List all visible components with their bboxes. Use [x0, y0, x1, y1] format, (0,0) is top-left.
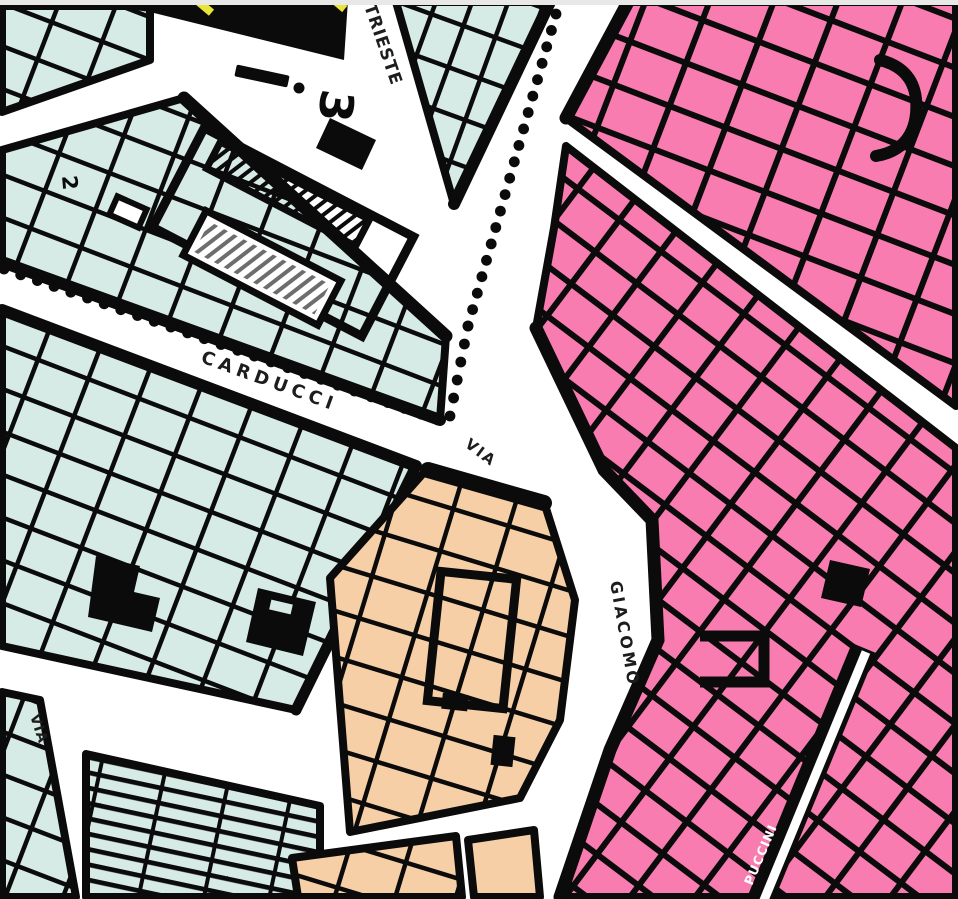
section-dot-icon	[294, 83, 305, 94]
parcel-number-2: 2	[57, 174, 82, 191]
zone-peach-bottom-fragment-2	[468, 830, 540, 897]
map-page: PUCCINI 3 2 TRIESTE CARDUCCI VIA GIACOMO…	[0, 0, 958, 899]
map-canvas[interactable]: PUCCINI 3 2 TRIESTE CARDUCCI VIA GIACOMO…	[0, 0, 958, 899]
zone-number-3: 3	[307, 87, 364, 125]
scan-edge-strip	[0, 0, 958, 5]
